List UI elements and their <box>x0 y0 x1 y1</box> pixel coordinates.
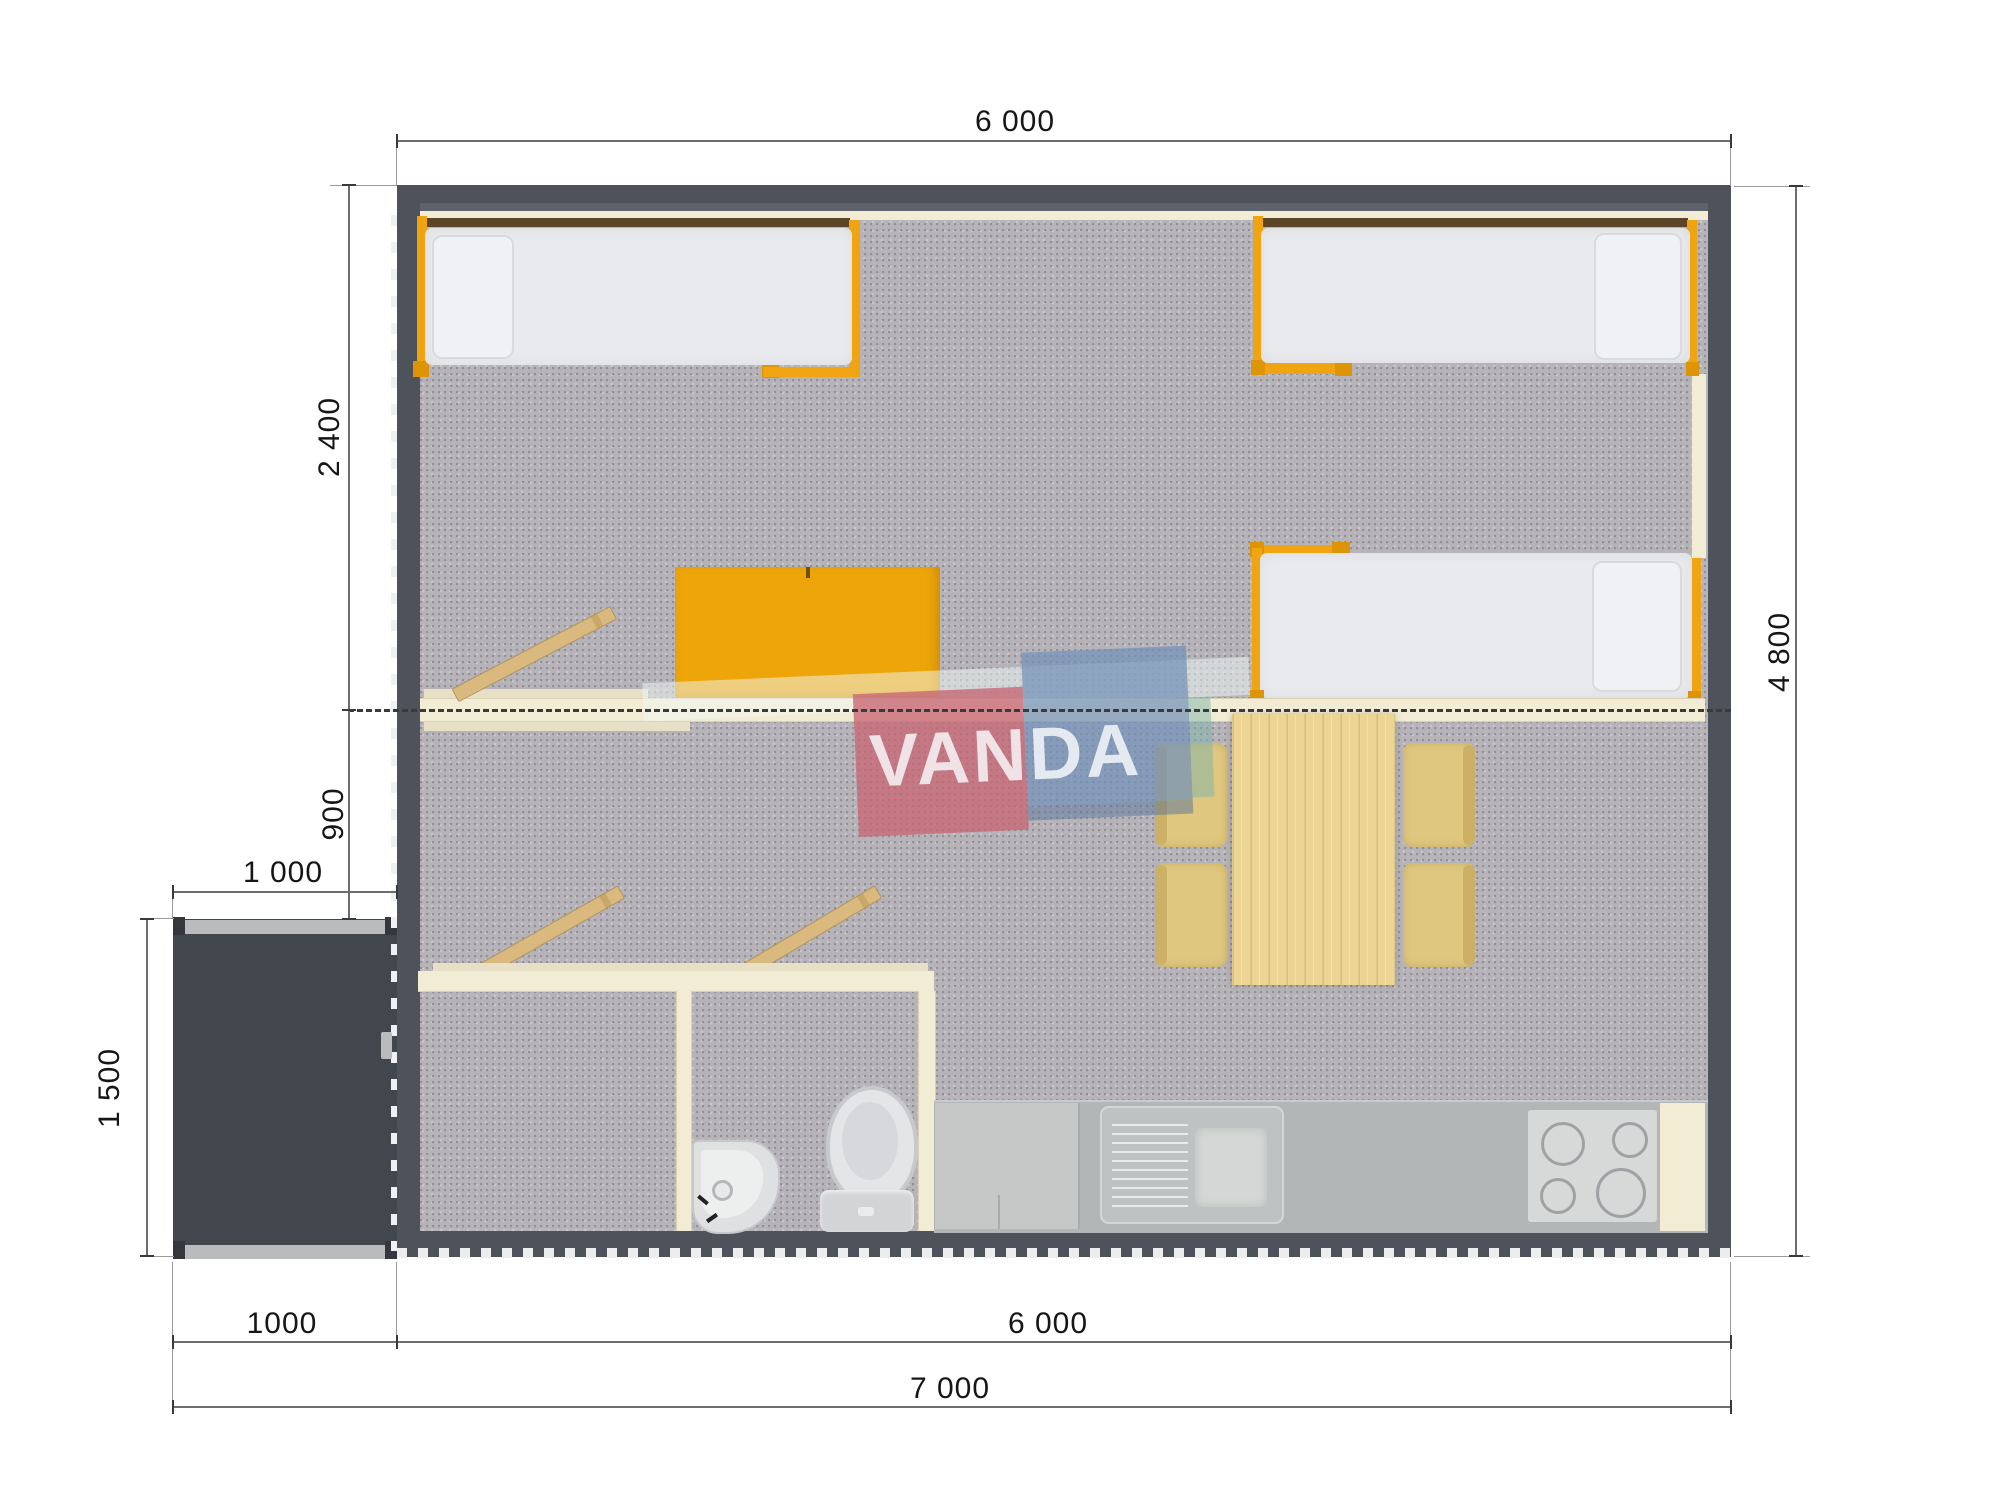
dim-tick <box>1730 134 1732 148</box>
dim-extension <box>330 185 397 186</box>
dim-tick <box>396 134 398 148</box>
toilet-flush-button <box>858 1207 874 1216</box>
watermark: VANDA <box>636 635 1264 852</box>
dim-label-bottom-porch: 1000 <box>247 1307 318 1341</box>
stove-burner-icon <box>1541 1122 1585 1166</box>
dim-tick <box>140 1255 154 1257</box>
dim-line-bottom-2 <box>173 1406 1731 1408</box>
stove-burner-icon <box>1596 1168 1646 1218</box>
porch-corner-block <box>173 917 185 935</box>
kitchen-sink-drainboard <box>1112 1124 1188 1208</box>
floor-plan-canvas: VANDA 6 000 2 400 900 1 000 1 500 4 800 … <box>0 0 2000 1502</box>
kitchen-fridge-seam <box>998 1195 1000 1229</box>
kitchen-sink-basin <box>1195 1128 1267 1207</box>
dim-label-bottom-total: 7 000 <box>910 1372 990 1406</box>
bottom-fascia-dashes <box>397 1248 1731 1258</box>
dim-label-left-lower: 900 <box>317 787 351 840</box>
dim-tick <box>396 885 398 899</box>
bathroom-wall-top <box>418 971 934 992</box>
dim-tick <box>342 184 356 186</box>
bed3-pillow <box>1592 561 1682 692</box>
kitchen-end-sill <box>1660 1103 1705 1231</box>
porch-top-step <box>182 920 388 934</box>
stove-burner-icon <box>1612 1122 1648 1158</box>
bed2-pillow <box>1594 233 1682 360</box>
dim-tick <box>172 1400 174 1414</box>
bathroom-wall-top-cap <box>433 963 928 971</box>
entrance-door-dashed-line <box>391 215 397 1251</box>
right-wall-windowsill <box>1692 374 1706 558</box>
dim-tick <box>1789 1255 1803 1257</box>
kitchen-fridge-unit <box>935 1103 1080 1229</box>
dim-extension <box>396 1262 397 1346</box>
dim-tick <box>342 709 356 711</box>
dim-tick <box>1730 1400 1732 1414</box>
module-divider-dashed-line <box>348 709 1731 712</box>
dim-tick <box>140 918 154 920</box>
bathroom-wall-divider <box>676 991 692 1231</box>
dim-label-top-width: 6 000 <box>975 105 1055 139</box>
bed1-frame-foot-rail <box>763 367 858 377</box>
dim-tick <box>1730 1335 1732 1349</box>
headboard-shelf-right <box>1262 218 1688 227</box>
dim-tick <box>342 918 356 920</box>
porch <box>173 919 397 1257</box>
dim-tick <box>1789 185 1803 187</box>
dim-line-porch-depth <box>146 919 148 1257</box>
dim-line-right <box>1795 186 1797 1257</box>
dining-chair-backrest <box>1155 865 1167 965</box>
dim-tick <box>172 1335 174 1349</box>
door-handle-icon <box>381 1032 392 1059</box>
bed2-frame-foot-rail <box>1253 363 1348 374</box>
dim-label-right-height: 4 800 <box>1763 612 1797 692</box>
headboard-shelf-left <box>420 218 850 227</box>
dim-label-porch-width: 1 000 <box>243 856 323 890</box>
dim-line-porch-width <box>173 891 397 893</box>
dim-tick <box>396 1335 398 1349</box>
dim-line-bottom-1 <box>173 1341 1731 1343</box>
stove-burner-icon <box>1540 1178 1576 1214</box>
dim-label-porch-depth: 1 500 <box>93 1048 127 1128</box>
bed1-pillow <box>432 235 514 359</box>
toilet-bowl <box>842 1102 898 1180</box>
dim-label-left-upper: 2 400 <box>313 397 347 477</box>
bed2-corner-block <box>1251 360 1265 375</box>
porch-corner-block <box>173 1241 185 1259</box>
dim-tick <box>172 885 174 899</box>
dim-line-top <box>397 140 1731 142</box>
wall-top-inner-face <box>420 203 1708 211</box>
dining-chair-backrest <box>1463 865 1475 965</box>
wardrobe-handle-notch <box>806 567 810 578</box>
bed2-corner-block <box>1686 362 1699 376</box>
dining-chair-backrest <box>1463 745 1475 845</box>
porch-bottom-step <box>182 1245 388 1259</box>
faucet-icon <box>712 1180 733 1201</box>
dim-label-bottom-main: 6 000 <box>1008 1307 1088 1341</box>
wall-right <box>1708 211 1731 1231</box>
